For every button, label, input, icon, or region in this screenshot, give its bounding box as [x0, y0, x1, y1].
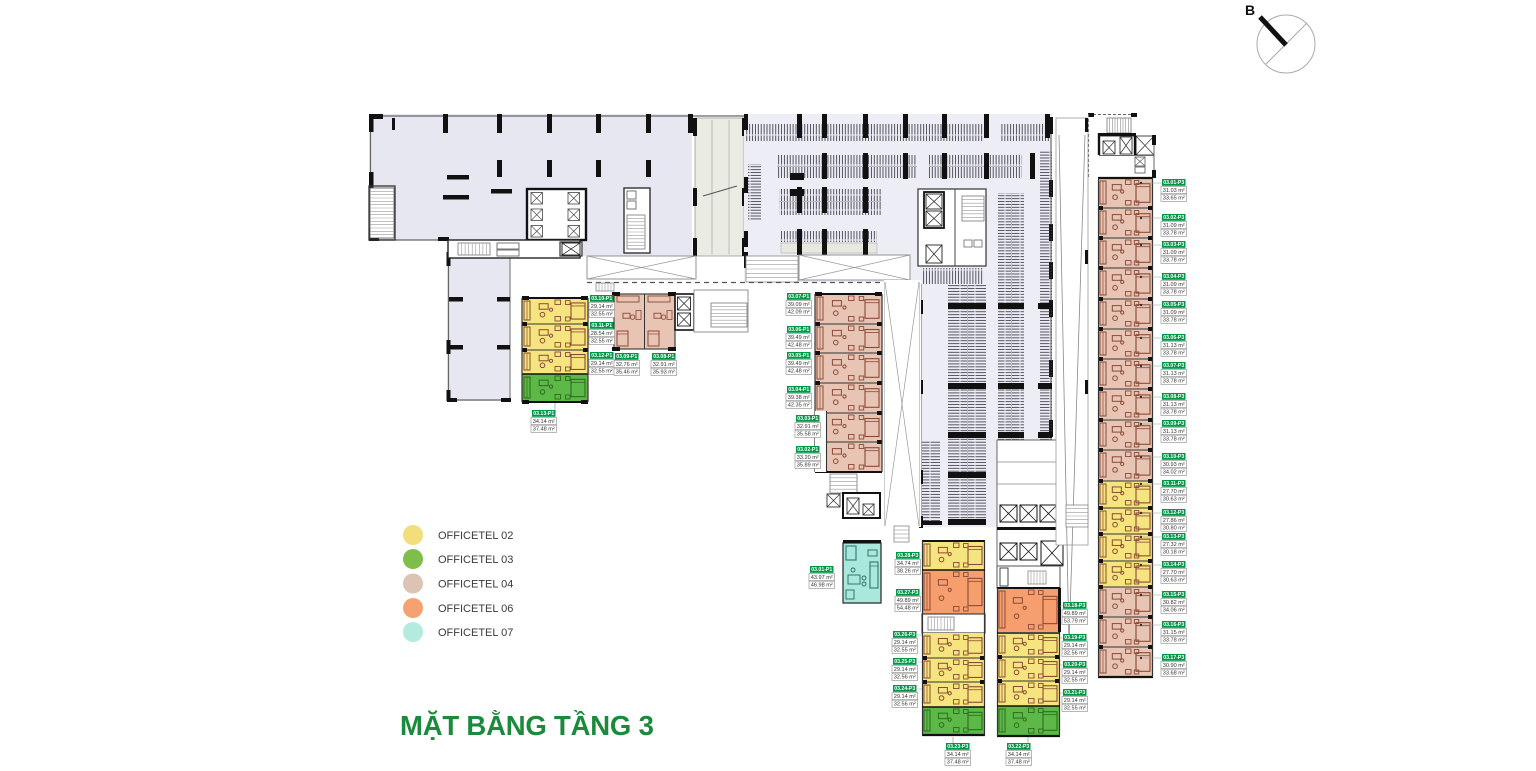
svg-text:03.12-P3: 03.12-P3 — [1163, 510, 1184, 516]
svg-text:46.98 m²: 46.98 m² — [811, 583, 833, 589]
svg-text:03.24-P3: 03.24-P3 — [894, 686, 915, 692]
svg-text:29.14 m²: 29.14 m² — [1064, 698, 1086, 704]
svg-text:33.78 m²: 33.78 m² — [1163, 410, 1185, 416]
svg-text:03.08-P1: 03.08-P1 — [653, 354, 674, 360]
svg-text:49.89 m²: 49.89 m² — [897, 598, 919, 604]
svg-text:03.01-P3: 03.01-P3 — [1163, 180, 1184, 186]
svg-text:32.56 m²: 32.56 m² — [1064, 651, 1086, 657]
svg-text:33.20 m²: 33.20 m² — [797, 455, 819, 461]
svg-text:29.14 m²: 29.14 m² — [894, 667, 916, 673]
svg-text:33.78 m²: 33.78 m² — [1163, 351, 1185, 357]
svg-text:32.55 m²: 32.55 m² — [1064, 678, 1086, 684]
svg-text:03.11-P3: 03.11-P3 — [1163, 481, 1184, 487]
svg-text:33.68 m²: 33.68 m² — [1163, 671, 1185, 677]
svg-text:30.63 m²: 30.63 m² — [1163, 578, 1185, 584]
svg-text:03.17-P3: 03.17-P3 — [1163, 655, 1184, 661]
svg-text:38.26 m²: 38.26 m² — [897, 569, 919, 575]
svg-text:34.02 m²: 34.02 m² — [1163, 470, 1185, 476]
svg-text:43.97 m²: 43.97 m² — [811, 575, 833, 581]
svg-text:32.76 m²: 32.76 m² — [616, 362, 638, 368]
svg-text:31.13 m²: 31.13 m² — [1163, 371, 1185, 377]
svg-text:30.82 m²: 30.82 m² — [1163, 600, 1185, 606]
svg-text:34.14 m²: 34.14 m² — [1008, 752, 1030, 758]
svg-text:03.13-P3: 03.13-P3 — [1163, 534, 1184, 540]
svg-text:42.09 m²: 42.09 m² — [788, 310, 810, 316]
svg-text:03.04-P1: 03.04-P1 — [788, 387, 809, 393]
svg-text:32.55 m²: 32.55 m² — [591, 312, 613, 318]
svg-text:03.03-P3: 03.03-P3 — [1163, 242, 1184, 248]
svg-text:30.80 m²: 30.80 m² — [1163, 526, 1185, 532]
svg-text:30.90 m²: 30.90 m² — [1163, 663, 1185, 669]
svg-text:28.54 m²: 28.54 m² — [591, 331, 613, 337]
svg-text:39.49 m²: 39.49 m² — [788, 361, 810, 367]
svg-text:35.89 m²: 35.89 m² — [797, 463, 819, 469]
svg-text:34.14 m²: 34.14 m² — [533, 419, 555, 425]
svg-text:31.03 m²: 31.03 m² — [1163, 188, 1185, 194]
svg-text:39.38 m²: 39.38 m² — [788, 395, 810, 401]
svg-text:03.06-P1: 03.06-P1 — [788, 327, 809, 333]
svg-text:33.78 m²: 33.78 m² — [1163, 290, 1185, 296]
svg-text:32.91 m²: 32.91 m² — [797, 424, 819, 430]
svg-text:31.13 m²: 31.13 m² — [1163, 343, 1185, 349]
svg-text:31.09 m²: 31.09 m² — [1163, 310, 1185, 316]
svg-text:03.18-P3: 03.18-P3 — [1064, 603, 1085, 609]
svg-text:31.15 m²: 31.15 m² — [1163, 630, 1185, 636]
svg-text:35.46 m²: 35.46 m² — [616, 370, 638, 376]
svg-text:35.93 m²: 35.93 m² — [653, 370, 675, 376]
svg-text:MẶT BẰNG TẦNG 3: MẶT BẰNG TẦNG 3 — [400, 710, 654, 741]
svg-text:03.08-P3: 03.08-P3 — [1163, 394, 1184, 400]
svg-text:03.04-P3: 03.04-P3 — [1163, 274, 1184, 280]
svg-text:34.74 m²: 34.74 m² — [897, 561, 919, 567]
svg-text:03.06-P3: 03.06-P3 — [1163, 335, 1184, 341]
svg-text:03.28-P3: 03.28-P3 — [897, 553, 918, 559]
svg-text:03.26-P3: 03.26-P3 — [894, 632, 915, 638]
svg-text:OFFICETEL 07: OFFICETEL 07 — [438, 627, 513, 639]
svg-text:31.13 m²: 31.13 m² — [1163, 429, 1185, 435]
svg-text:03.25-P3: 03.25-P3 — [894, 659, 915, 665]
svg-text:OFFICETEL 02: OFFICETEL 02 — [438, 530, 513, 542]
svg-text:03.02-P1: 03.02-P1 — [797, 447, 818, 453]
svg-text:03.20-P3: 03.20-P3 — [1064, 662, 1085, 668]
svg-text:03.15-P3: 03.15-P3 — [1163, 592, 1184, 598]
svg-text:37.48 m²: 37.48 m² — [533, 427, 555, 433]
svg-text:42.48 m²: 42.48 m² — [788, 343, 810, 349]
svg-text:03.01-P1: 03.01-P1 — [811, 567, 832, 573]
svg-text:30.18 m²: 30.18 m² — [1163, 550, 1185, 556]
svg-text:27.70 m²: 27.70 m² — [1163, 489, 1185, 495]
svg-text:27.86 m²: 27.86 m² — [1163, 518, 1185, 524]
svg-text:33.78 m²: 33.78 m² — [1163, 638, 1185, 644]
svg-text:29.14 m²: 29.14 m² — [894, 640, 916, 646]
svg-text:33.78 m²: 33.78 m² — [1163, 379, 1185, 385]
svg-text:03.05-P1: 03.05-P1 — [788, 353, 809, 359]
svg-text:34.06 m²: 34.06 m² — [1163, 608, 1185, 614]
svg-text:OFFICETEL 04: OFFICETEL 04 — [438, 578, 513, 590]
svg-text:03.21-P3: 03.21-P3 — [1064, 690, 1085, 696]
svg-text:OFFICETEL 06: OFFICETEL 06 — [438, 603, 513, 615]
svg-text:03.16-P3: 03.16-P3 — [1163, 622, 1184, 628]
svg-text:31.09 m²: 31.09 m² — [1163, 250, 1185, 256]
svg-text:30.93 m²: 30.93 m² — [1163, 462, 1185, 468]
svg-text:03.05-P3: 03.05-P3 — [1163, 302, 1184, 308]
svg-text:39.09 m²: 39.09 m² — [788, 302, 810, 308]
svg-text:31.13 m²: 31.13 m² — [1163, 402, 1185, 408]
svg-text:03.10-P3: 03.10-P3 — [1163, 454, 1184, 460]
svg-text:03.12-P1: 03.12-P1 — [591, 353, 612, 359]
svg-text:33.78 m²: 33.78 m² — [1163, 318, 1185, 324]
svg-text:31.09 m²: 31.09 m² — [1163, 282, 1185, 288]
svg-text:03.13-P1: 03.13-P1 — [533, 411, 554, 417]
svg-text:03.11-P1: 03.11-P1 — [591, 323, 612, 329]
svg-text:34.14 m²: 34.14 m² — [947, 752, 969, 758]
svg-text:OFFICETEL 03: OFFICETEL 03 — [438, 554, 513, 566]
svg-text:03.23-P3: 03.23-P3 — [947, 744, 968, 750]
svg-text:32.55 m²: 32.55 m² — [591, 369, 613, 375]
svg-text:42.48 m²: 42.48 m² — [788, 369, 810, 375]
svg-text:03.22-P3: 03.22-P3 — [1008, 744, 1029, 750]
svg-text:54.48 m²: 54.48 m² — [897, 606, 919, 612]
svg-text:03.09-P3: 03.09-P3 — [1163, 421, 1184, 427]
svg-text:32.56 m²: 32.56 m² — [894, 702, 916, 708]
svg-text:37.48 m²: 37.48 m² — [1008, 760, 1030, 766]
svg-text:03.07-P1: 03.07-P1 — [788, 294, 809, 300]
svg-text:30.63 m²: 30.63 m² — [1163, 497, 1185, 503]
svg-text:32.55 m²: 32.55 m² — [1064, 706, 1086, 712]
svg-text:32.91 m²: 32.91 m² — [653, 362, 675, 368]
svg-text:29.14 m²: 29.14 m² — [591, 361, 613, 367]
svg-text:37.48 m²: 37.48 m² — [947, 760, 969, 766]
svg-text:29.14 m²: 29.14 m² — [1064, 643, 1086, 649]
svg-text:03.02-P3: 03.02-P3 — [1163, 215, 1184, 221]
svg-text:32.56 m²: 32.56 m² — [894, 675, 916, 681]
svg-text:31.09 m²: 31.09 m² — [1163, 223, 1185, 229]
svg-text:33.78 m²: 33.78 m² — [1163, 231, 1185, 237]
svg-text:35.58 m²: 35.58 m² — [797, 432, 819, 438]
svg-text:29.14 m²: 29.14 m² — [894, 694, 916, 700]
svg-text:49.89 m²: 49.89 m² — [1064, 611, 1086, 617]
svg-text:27.32 m²: 27.32 m² — [1163, 542, 1185, 548]
svg-text:03.07-P3: 03.07-P3 — [1163, 363, 1184, 369]
svg-text:42.35 m²: 42.35 m² — [788, 403, 810, 409]
svg-text:39.49 m²: 39.49 m² — [788, 335, 810, 341]
svg-text:03.19-P3: 03.19-P3 — [1064, 635, 1085, 641]
svg-text:03.27-P3: 03.27-P3 — [897, 590, 918, 596]
svg-text:32.55 m²: 32.55 m² — [894, 648, 916, 654]
svg-text:B: B — [1245, 2, 1255, 18]
svg-text:33.78 m²: 33.78 m² — [1163, 437, 1185, 443]
svg-text:33.65 m²: 33.65 m² — [1163, 196, 1185, 202]
svg-text:33.78 m²: 33.78 m² — [1163, 258, 1185, 264]
svg-text:03.03-P1: 03.03-P1 — [797, 416, 818, 422]
svg-text:27.70 m²: 27.70 m² — [1163, 570, 1185, 576]
svg-text:03.14-P3: 03.14-P3 — [1163, 562, 1184, 568]
svg-text:53.79 m²: 53.79 m² — [1064, 619, 1086, 625]
svg-text:29.14 m²: 29.14 m² — [591, 304, 613, 310]
svg-text:29.14 m²: 29.14 m² — [1064, 670, 1086, 676]
svg-text:03.09-P1: 03.09-P1 — [616, 354, 637, 360]
svg-text:03.10-P1: 03.10-P1 — [591, 296, 612, 302]
svg-text:32.55 m²: 32.55 m² — [591, 339, 613, 345]
